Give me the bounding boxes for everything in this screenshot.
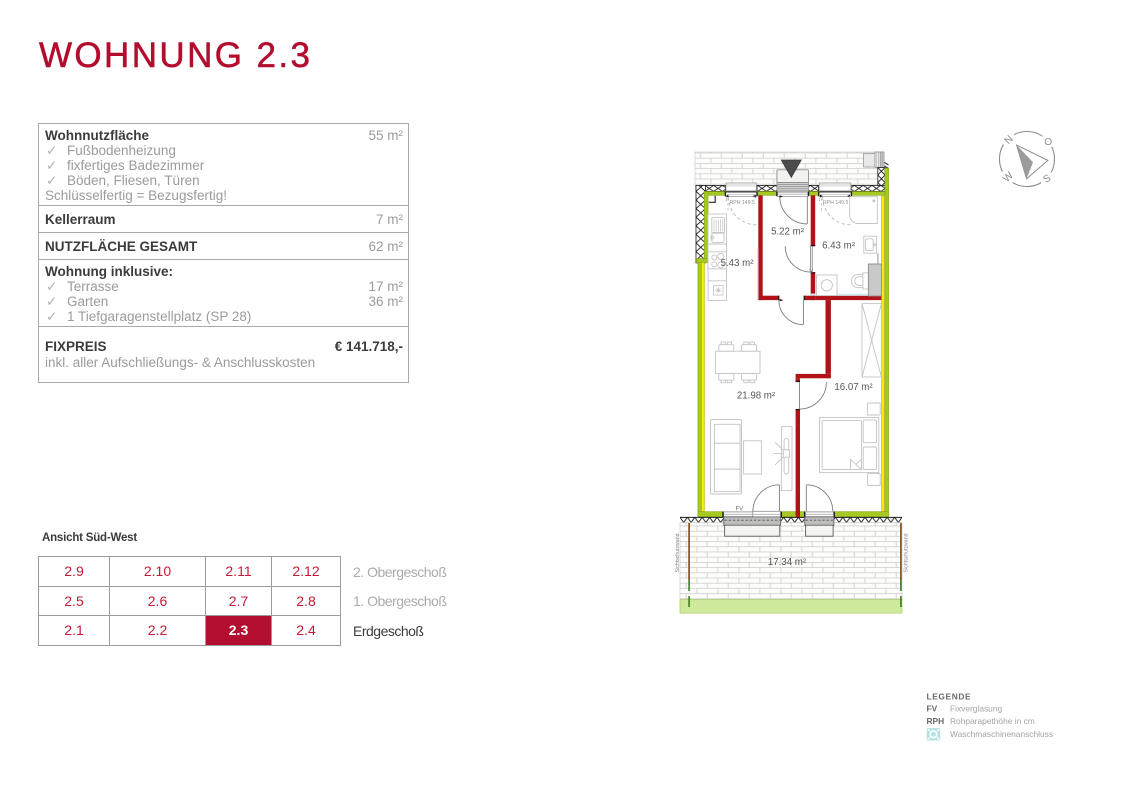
svg-text:5.43 m²: 5.43 m² [721,258,755,269]
svg-text:Sichtschutzwand: Sichtschutzwand [675,533,681,572]
svg-text:FV: FV [927,704,938,714]
svg-text:Rohparapethöhe in cm: Rohparapethöhe in cm [950,716,1035,726]
svg-text:5.22 m²: 5.22 m² [771,226,805,237]
svg-text:FV: FV [736,506,744,512]
svg-text:RPH: RPH [927,716,945,726]
svg-text:16.07 m²: 16.07 m² [834,382,873,393]
svg-text:21.98 m²: 21.98 m² [737,390,776,401]
svg-text:RPH 149.5: RPH 149.5 [730,200,755,206]
svg-text:17.34 m²: 17.34 m² [768,557,807,568]
svg-text:O: O [1044,137,1052,148]
svg-text:6.43 m²: 6.43 m² [822,240,856,251]
svg-text:Fixverglasung: Fixverglasung [950,704,1002,714]
svg-text:LEGENDE: LEGENDE [927,692,972,702]
svg-text:Waschmaschinenanschluss: Waschmaschinenanschluss [950,729,1053,739]
svg-text:Sichtschutzwand: Sichtschutzwand [904,533,910,572]
svg-text:RPH 149.5: RPH 149.5 [823,200,848,206]
